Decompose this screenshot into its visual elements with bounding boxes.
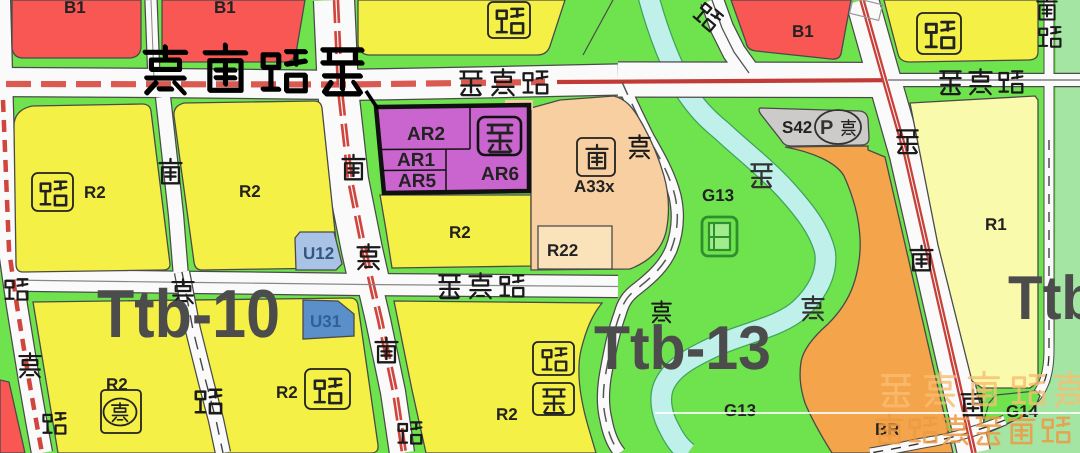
svg-text:AR5: AR5: [398, 171, 436, 192]
svg-text:R22: R22: [547, 241, 578, 260]
svg-text:G13: G13: [724, 401, 756, 420]
svg-text:R2: R2: [84, 183, 106, 202]
svg-text:U12: U12: [303, 244, 334, 263]
svg-text:AR1: AR1: [397, 150, 435, 171]
svg-text:R2: R2: [106, 375, 128, 394]
svg-text:AR2: AR2: [407, 124, 445, 145]
svg-text:G13: G13: [702, 186, 734, 205]
svg-text:Ttb-10: Ttb-10: [97, 276, 280, 352]
svg-text:R2: R2: [276, 383, 298, 402]
svg-text:B1: B1: [214, 0, 236, 17]
svg-text:R2: R2: [239, 182, 261, 201]
svg-text:B1: B1: [64, 0, 86, 17]
svg-text:P: P: [820, 117, 833, 139]
svg-text:U31: U31: [310, 312, 341, 331]
svg-text:A33x: A33x: [574, 177, 615, 196]
svg-text:B1: B1: [792, 22, 814, 41]
svg-text:R2: R2: [496, 405, 518, 424]
svg-text:Ttb: Ttb: [1008, 264, 1080, 333]
svg-text:S42: S42: [782, 118, 812, 137]
svg-text:Ttb-13: Ttb-13: [594, 314, 771, 383]
svg-text:AR6: AR6: [481, 164, 519, 185]
svg-text:R2: R2: [449, 223, 471, 242]
svg-text:R1: R1: [985, 215, 1007, 234]
